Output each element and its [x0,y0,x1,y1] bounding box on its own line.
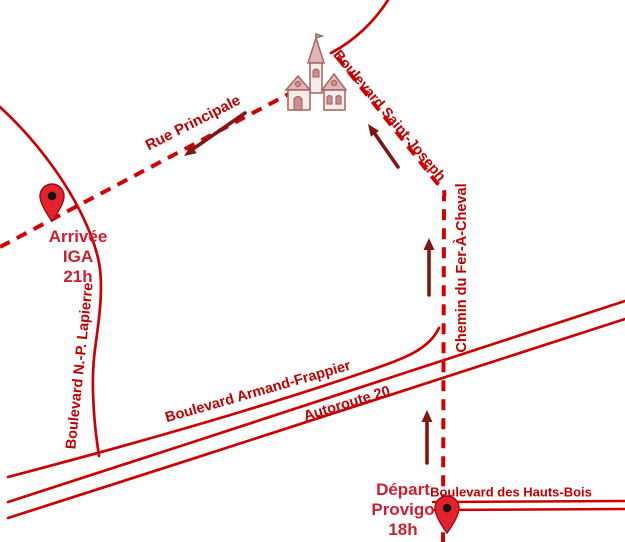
depart-line-3: 18h [371,520,434,540]
direction-arrow-fer-a-cheval [424,238,435,295]
road-label-fer-a-cheval: Chemin du Fer-À-Cheval [454,183,470,352]
arrivee-line-1: Arrivée [49,227,108,247]
map-pin-arrivee[interactable] [40,184,64,221]
direction-arrow-depart [422,410,433,463]
arrivee-line-2: IGA [49,247,108,267]
arrivee-line-3: 21h [49,267,108,287]
map-pin-depart[interactable] [435,496,459,533]
marker-label-depart: Départ Provigo 18h [371,480,434,540]
depart-line-2: Provigo [371,500,434,520]
marker-label-arrivee: Arrivée IGA 21h [49,227,108,287]
route-rue-principale-dashed [0,88,300,247]
road-hauts-bois-north-line [433,501,625,502]
depart-line-1: Départ [371,480,434,500]
route-map: Rue Principale Boulevard Saint-Joseph Ch… [0,0,625,542]
church-icon [286,34,346,110]
road-hauts-bois-south-line [433,509,625,510]
road-saint-joseph-upper-line [331,0,388,53]
road-label-hauts-bois: Boulevard des Hauts-Bois [430,485,592,500]
road-autoroute-north-line [8,301,625,502]
